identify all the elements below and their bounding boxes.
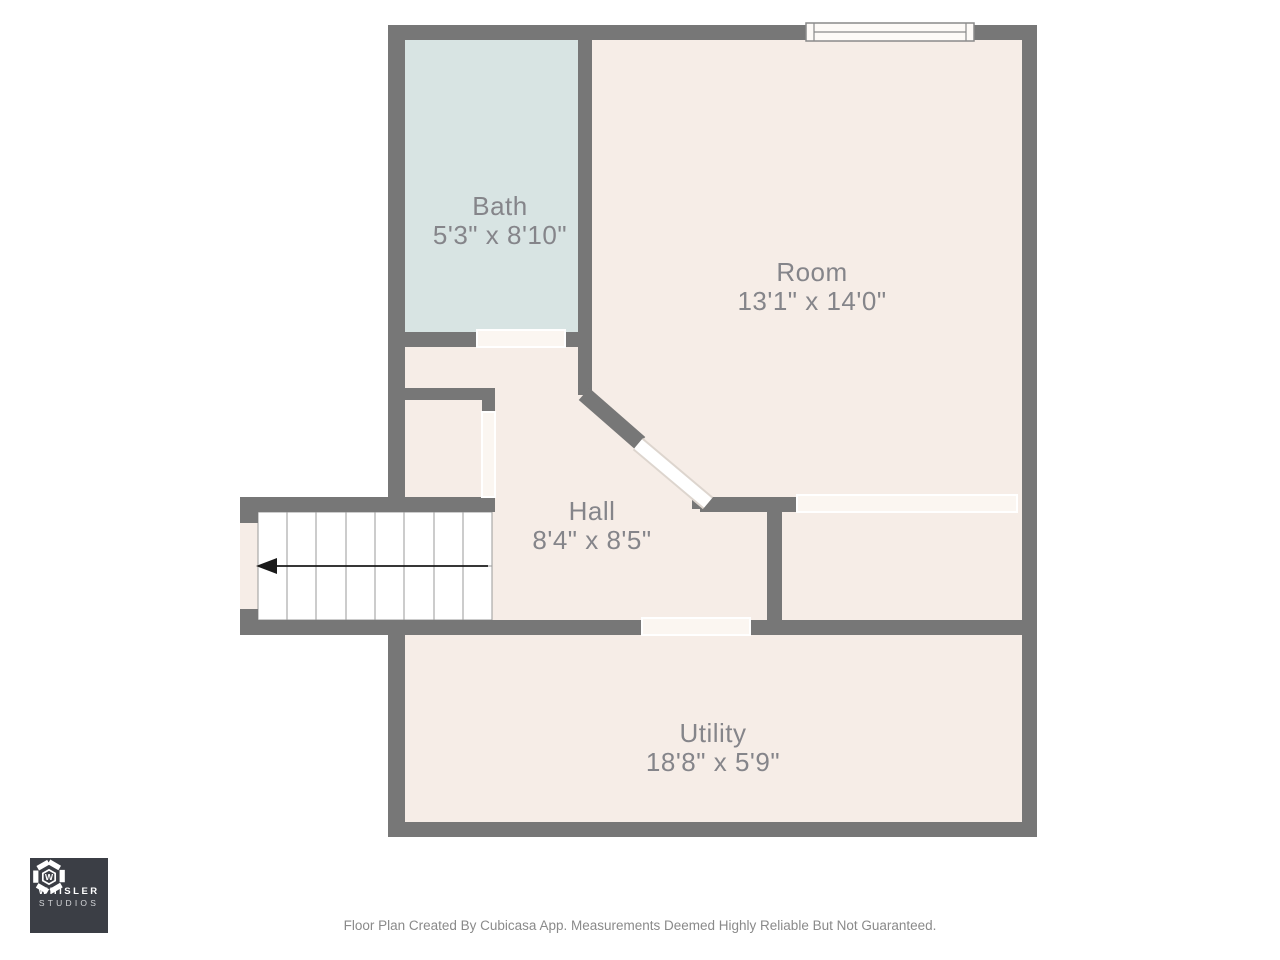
floor-plan-canvas: Bath 5'3" x 8'10" Room 13'1" x 14'0" Hal… bbox=[0, 0, 1280, 960]
room-closet-opening bbox=[797, 495, 1017, 512]
hall-utility-opening bbox=[642, 618, 750, 635]
room-label: Room bbox=[776, 257, 847, 287]
bath-dimensions: 5'3" x 8'10" bbox=[433, 220, 567, 250]
svg-text:W: W bbox=[45, 872, 54, 882]
wall-stair-tab-bottom bbox=[240, 609, 258, 620]
footer-disclaimer: Floor Plan Created By Cubicasa App. Meas… bbox=[0, 918, 1280, 933]
utility-label: Utility bbox=[679, 718, 746, 748]
floor-plan-page: Bath 5'3" x 8'10" Room 13'1" x 14'0" Hal… bbox=[0, 0, 1280, 960]
wall-outer-left-upper bbox=[388, 40, 405, 497]
wall-hall-right bbox=[767, 497, 782, 620]
bath-label: Bath bbox=[472, 191, 528, 221]
wall-closet-top bbox=[405, 388, 495, 400]
wall-outer-right bbox=[1022, 40, 1037, 837]
logo-text-line2: STUDIOS bbox=[39, 898, 99, 908]
closet-door-opening bbox=[482, 412, 495, 497]
utility-dimensions: 18'8" x 5'9" bbox=[646, 747, 780, 777]
bath-floor bbox=[405, 40, 578, 332]
wall-closet-right-stub bbox=[482, 388, 495, 412]
hall-dimensions: 8'4" x 8'5" bbox=[532, 525, 651, 555]
wall-outer-left-lower bbox=[388, 635, 405, 822]
whisler-logo-icon: W bbox=[30, 858, 68, 896]
wall-stairwell-top bbox=[240, 497, 495, 512]
wall-bath-bottom-left bbox=[405, 332, 477, 347]
window-symbol bbox=[806, 23, 974, 41]
bath-door-opening bbox=[477, 330, 565, 347]
wall-room-bottom bbox=[700, 497, 800, 512]
wall-bath-room-divider bbox=[578, 40, 592, 395]
wall-hall-bottom-left bbox=[240, 620, 642, 635]
wall-hall-bottom-right bbox=[750, 620, 1022, 635]
wall-outer-bottom bbox=[388, 822, 1037, 837]
hall-label: Hall bbox=[569, 496, 616, 526]
room-dimensions: 13'1" x 14'0" bbox=[737, 286, 886, 316]
wall-stair-tab-top bbox=[240, 512, 258, 523]
